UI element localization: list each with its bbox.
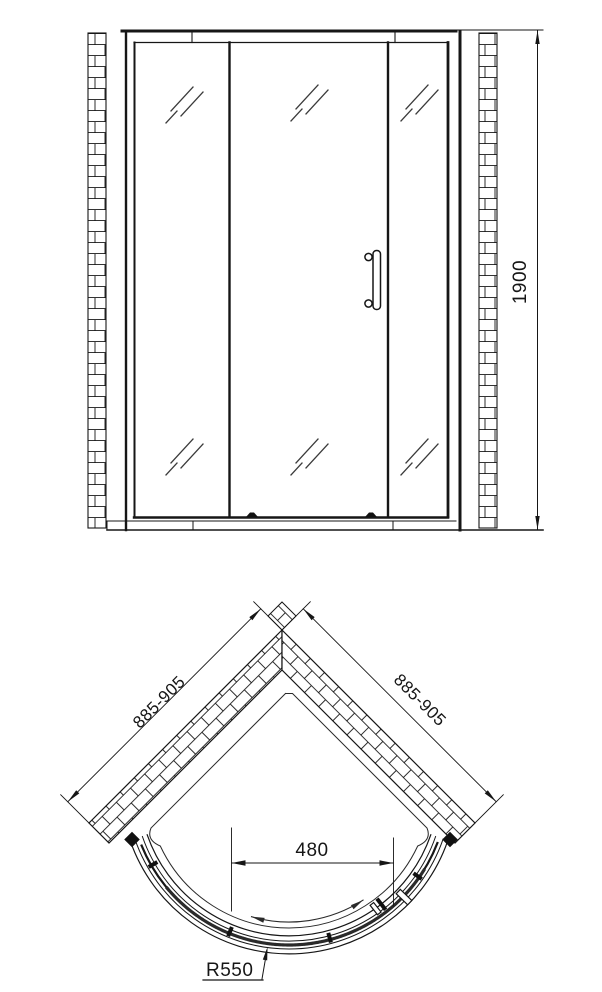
plan-left-wall-hatch	[89, 630, 282, 843]
dimension-text-radius: R550	[206, 960, 253, 981]
plan-right-wall-hatch	[282, 630, 475, 843]
opening-dimension: 480	[232, 828, 394, 911]
slide-direction-arrow	[252, 900, 364, 923]
front-elevation-view: 1900	[88, 30, 543, 530]
radius-label: R550	[203, 947, 268, 981]
drawing-canvas: 1900	[0, 0, 602, 992]
height-dimension: 1900	[456, 30, 543, 530]
wall-dimension-left: 885-905	[61, 602, 282, 823]
right-wall-hatch	[479, 33, 497, 528]
roller-right	[365, 513, 377, 518]
dimension-text-left-wall: 885-905	[129, 672, 189, 732]
door-handle-icon	[365, 251, 381, 310]
arrow-down-icon	[535, 516, 539, 530]
shower-enclosure-technical-drawing: 1900	[0, 0, 602, 992]
left-wall-hatch	[88, 33, 106, 528]
arrow-up-icon	[535, 31, 539, 45]
wall-dimension-right: 885-905	[282, 602, 503, 823]
dimension-text-height: 1900	[510, 260, 531, 304]
dimension-text-right-wall: 885-905	[390, 670, 450, 730]
leader-arrow-icon	[263, 947, 268, 960]
roller-left	[246, 513, 258, 518]
dimension-text-opening: 480	[295, 840, 328, 861]
plan-corner-overlap	[268, 602, 296, 630]
plan-view: 885-905 885-905 480 R550	[61, 602, 504, 981]
glass-mark-icons	[166, 85, 438, 475]
